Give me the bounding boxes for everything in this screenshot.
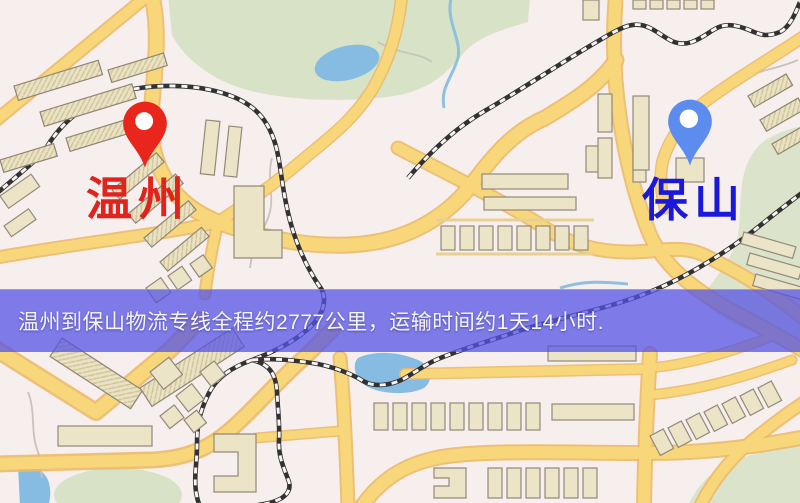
destination-pin-icon (662, 95, 718, 169)
map-canvas (0, 0, 800, 503)
route-info-text: 温州到保山物流专线全程约2777公里，运输时间约1天14小时. (18, 306, 604, 336)
origin-pin-icon (117, 97, 173, 171)
logistics-route-map: 温州到保山物流专线全程约2777公里，运输时间约1天14小时. 温州 保山 (0, 0, 800, 503)
origin-label: 温州 (86, 176, 190, 222)
route-info-banner: 温州到保山物流专线全程约2777公里，运输时间约1天14小时. (0, 289, 800, 352)
destination-label: 保山 (642, 177, 746, 223)
